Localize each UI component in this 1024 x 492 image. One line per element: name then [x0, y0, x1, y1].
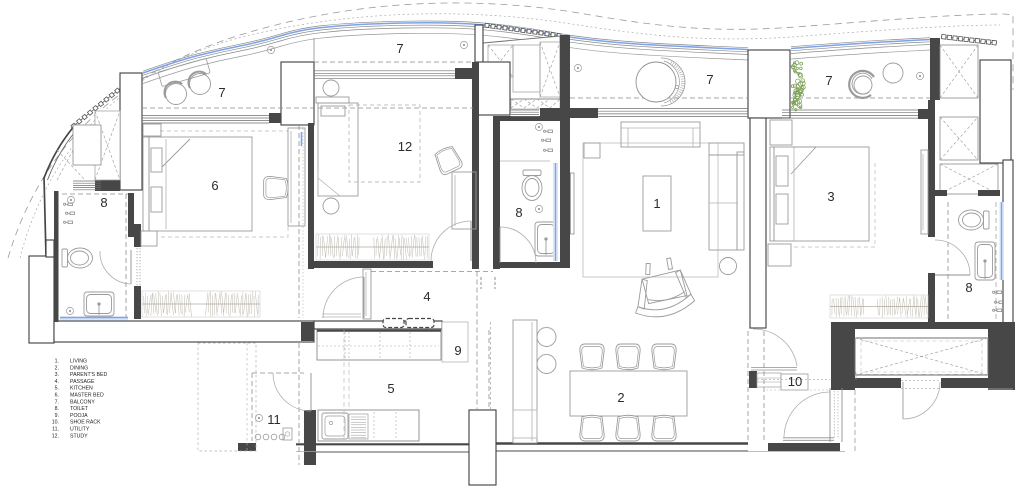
svg-text:STUDY: STUDY	[70, 433, 88, 439]
svg-text:12: 12	[398, 139, 412, 154]
svg-text:2.: 2.	[55, 365, 59, 371]
svg-text:12.: 12.	[52, 433, 59, 439]
svg-text:6: 6	[211, 178, 218, 193]
svg-text:10.: 10.	[52, 420, 59, 426]
svg-text:2: 2	[617, 390, 624, 405]
svg-text:8: 8	[965, 280, 972, 295]
svg-text:9: 9	[454, 343, 461, 358]
svg-text:7: 7	[218, 85, 225, 100]
svg-text:4: 4	[423, 289, 430, 304]
svg-text:8: 8	[515, 205, 522, 220]
svg-text:6.: 6.	[55, 393, 59, 399]
svg-text:1: 1	[653, 196, 660, 211]
svg-text:KITCHEN: KITCHEN	[70, 386, 93, 392]
svg-text:PASSAGE: PASSAGE	[70, 379, 95, 385]
svg-text:4.: 4.	[55, 379, 59, 385]
svg-text:SHOE RACK: SHOE RACK	[70, 420, 101, 426]
svg-text:3: 3	[827, 189, 834, 204]
svg-text:5.: 5.	[55, 386, 59, 392]
svg-text:10: 10	[788, 374, 802, 389]
svg-text:BALCONY: BALCONY	[70, 399, 95, 405]
svg-text:POOJA: POOJA	[70, 413, 88, 419]
svg-text:9.: 9.	[55, 413, 59, 419]
svg-text:7: 7	[396, 41, 403, 56]
svg-text:11.: 11.	[52, 427, 59, 433]
svg-text:7: 7	[825, 73, 832, 88]
svg-text:TOILET: TOILET	[70, 406, 89, 412]
svg-text:7: 7	[706, 72, 713, 87]
svg-text:3.: 3.	[55, 372, 59, 378]
svg-text:MASTER BED: MASTER BED	[70, 393, 104, 399]
svg-text:11: 11	[267, 412, 281, 427]
svg-text:1.: 1.	[55, 359, 59, 365]
svg-text:DINING: DINING	[70, 365, 88, 371]
svg-text:PARENT'S BED: PARENT'S BED	[70, 372, 107, 378]
svg-text:8: 8	[100, 195, 107, 210]
svg-text:8.: 8.	[55, 406, 59, 412]
svg-text:UTILITY: UTILITY	[70, 427, 90, 433]
svg-text:LIVING: LIVING	[70, 359, 87, 365]
svg-text:7.: 7.	[55, 399, 59, 405]
svg-text:5: 5	[387, 381, 394, 396]
